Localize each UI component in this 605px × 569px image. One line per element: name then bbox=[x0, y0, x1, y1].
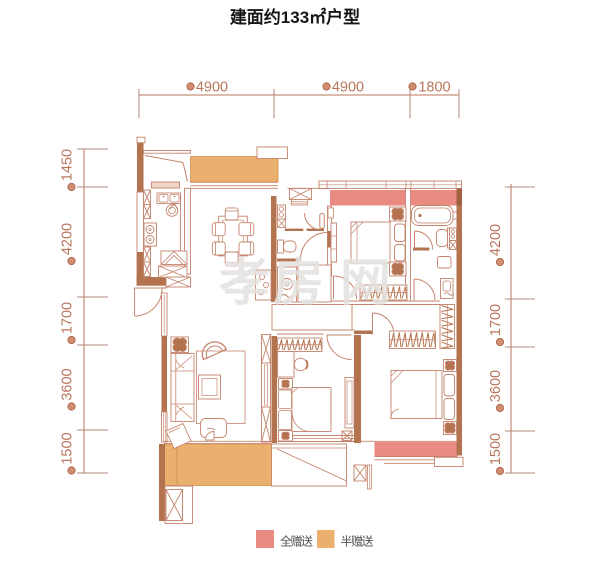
svg-text:1500: 1500 bbox=[60, 432, 76, 464]
svg-text:全赠送: 全赠送 bbox=[280, 534, 313, 549]
svg-text:4200: 4200 bbox=[488, 224, 504, 256]
svg-text:4900: 4900 bbox=[332, 80, 364, 96]
svg-text:房: 房 bbox=[273, 254, 324, 311]
svg-text:1500: 1500 bbox=[488, 433, 504, 465]
svg-text:建面约133㎡户型: 建面约133㎡户型 bbox=[230, 7, 360, 27]
svg-text:3600: 3600 bbox=[488, 370, 504, 402]
svg-text:4900: 4900 bbox=[196, 80, 228, 96]
svg-text:1700: 1700 bbox=[488, 304, 504, 336]
svg-text:1800: 1800 bbox=[418, 80, 450, 96]
svg-text:孝: 孝 bbox=[219, 254, 270, 311]
svg-text:1450: 1450 bbox=[60, 149, 76, 181]
svg-text:半赠送: 半赠送 bbox=[341, 534, 374, 549]
svg-text:4200: 4200 bbox=[60, 223, 76, 255]
svg-text:网: 网 bbox=[340, 254, 391, 311]
svg-text:1700: 1700 bbox=[60, 302, 76, 334]
svg-text:3600: 3600 bbox=[60, 368, 76, 400]
